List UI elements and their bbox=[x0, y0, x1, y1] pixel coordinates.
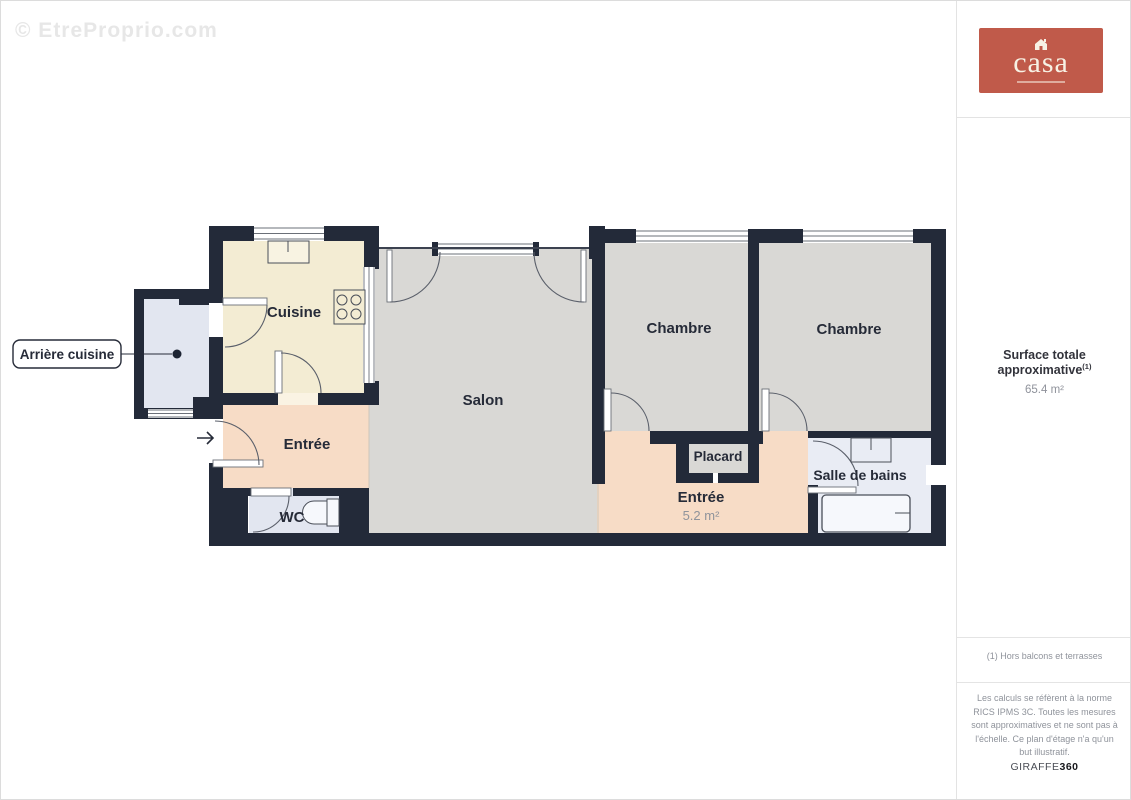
logo-section: casa bbox=[957, 1, 1131, 118]
toilet-icon bbox=[303, 499, 340, 526]
window-arriere-cuisine bbox=[148, 409, 193, 418]
room-chambre-1 bbox=[605, 243, 748, 431]
brand-suffix: 360 bbox=[1059, 761, 1078, 773]
window-chambre-1 bbox=[636, 229, 748, 243]
disclaimer-text: Les calculs se réfèrent à la norme RICS … bbox=[968, 692, 1121, 760]
surface-total-value: 65.4 m² bbox=[957, 384, 1131, 396]
bathroom-sink-icon bbox=[851, 438, 891, 462]
callout-dot bbox=[173, 350, 182, 359]
brand-logo: GIRAFFE360 bbox=[957, 761, 1131, 773]
label-chambre-1: Chambre bbox=[646, 320, 711, 337]
footnote-text: (1) Hors balcons et terrasses bbox=[957, 651, 1131, 661]
brand-name: GIRAFFE bbox=[1010, 761, 1059, 773]
surface-footnote-marker: (1) bbox=[1082, 362, 1091, 371]
window-chambre-2 bbox=[803, 229, 913, 243]
window-cuisine bbox=[254, 226, 324, 241]
logo-tagline bbox=[1017, 81, 1065, 83]
bathtub-icon bbox=[822, 495, 910, 532]
room-salon bbox=[369, 248, 592, 533]
label-wc: WC bbox=[280, 509, 305, 526]
label-cuisine: Cuisine bbox=[267, 304, 321, 321]
logo-wordmark: casa bbox=[1013, 49, 1069, 76]
floorplan-page: © EtreProprio.com bbox=[0, 0, 1131, 800]
label-entree-left: Entrée bbox=[284, 436, 331, 453]
label-entree-right-area: 5.2 m² bbox=[683, 508, 721, 523]
floorplan-drawing: Arrière cuisine Cuisine Salon Chambre Ch… bbox=[1, 1, 956, 800]
label-salon: Salon bbox=[463, 392, 504, 409]
info-sidebar: casa Surface totale approximative(1) 65.… bbox=[956, 1, 1131, 800]
kitchen-sink-icon bbox=[268, 241, 309, 263]
label-arriere-cuisine: Arrière cuisine bbox=[20, 347, 115, 362]
agency-logo: casa bbox=[979, 28, 1103, 93]
divider bbox=[957, 682, 1131, 683]
label-entree-right: Entrée bbox=[678, 489, 725, 506]
surface-block: Surface totale approximative(1) 65.4 m² bbox=[957, 348, 1131, 396]
label-salle-de-bains: Salle de bains bbox=[813, 467, 907, 483]
label-placard: Placard bbox=[694, 449, 743, 464]
label-chambre-2: Chambre bbox=[816, 321, 881, 338]
stove-icon bbox=[334, 290, 365, 324]
divider bbox=[957, 637, 1131, 638]
surface-total-label: Surface totale approximative(1) bbox=[957, 348, 1131, 377]
window-cuisine-salon bbox=[363, 267, 375, 383]
